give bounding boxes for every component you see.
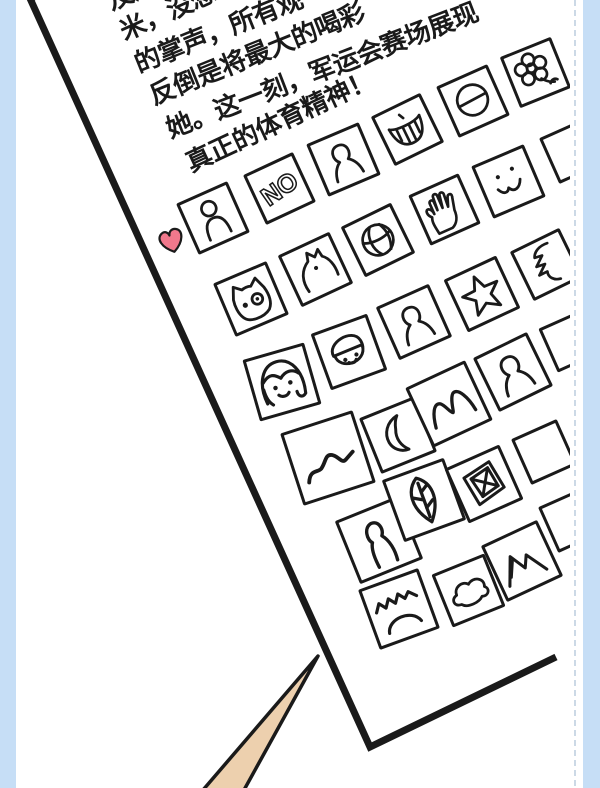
right-dashed-line — [574, 0, 576, 788]
clipped-box-icon — [543, 122, 570, 180]
girl-face-icon — [246, 346, 318, 418]
left-border-strip — [0, 0, 16, 788]
sticker-boy-face — [311, 314, 388, 391]
right-border-strip — [583, 0, 600, 788]
sticker-person-bust — [306, 122, 381, 197]
panel-content: 及远 米，没想到 的掌声，所有观 反倒是将最大的喝彩 她。这一刻，军运会赛场展现… — [16, 0, 570, 788]
no-text-icon: NO — [247, 156, 312, 221]
zigzag-waves-sun-icon — [362, 572, 436, 646]
person-outline-icon — [180, 185, 246, 251]
flower-icon — [504, 41, 568, 105]
sticker-person-bust — [473, 332, 553, 412]
sticker-zigzag-waves-sun — [358, 568, 440, 650]
sticker-clipped-box — [538, 309, 570, 372]
boy-face-icon — [314, 317, 383, 386]
sticker-grin-teeth — [371, 93, 445, 167]
smiley-face-icon — [475, 148, 542, 215]
comic-panel: 及远 米，没想到 的掌声，所有观 反倒是将最大的喝彩 她。这一刻，军运会赛场展现… — [0, 0, 600, 788]
sticker-cat-profile — [278, 232, 354, 308]
sticker-hand — [408, 173, 481, 246]
sticker-person-bust — [376, 284, 453, 361]
person-bust-icon — [380, 288, 449, 357]
sticker-clipped-box — [539, 118, 570, 184]
sticker-zigzag-profile — [510, 228, 570, 302]
svg-text:NO: NO — [256, 167, 304, 212]
clipped-box-icon — [542, 313, 570, 368]
cat-profile-icon — [282, 236, 350, 304]
sticker-owl-face — [213, 261, 289, 337]
sticker-girl-face — [242, 342, 321, 421]
sticker-clipped-box — [511, 419, 570, 485]
hills-line-icon — [284, 414, 372, 502]
basketball-icon — [345, 207, 412, 274]
owl-face-icon — [217, 265, 285, 333]
person-bust-icon — [310, 126, 377, 193]
clipped-box-icon — [515, 423, 570, 481]
grin-teeth-icon — [375, 97, 441, 163]
sticker-smiley-face — [471, 144, 546, 219]
hand-icon — [412, 177, 477, 242]
sticker-star — [443, 255, 520, 332]
sticker-circle-slash — [436, 64, 510, 138]
star-icon — [447, 259, 516, 328]
sticker-no-text: NO — [243, 152, 316, 225]
sticker-flower — [500, 37, 570, 109]
person-bust-icon — [477, 336, 549, 408]
zigzag-profile-icon — [514, 232, 570, 298]
sticker-basketball — [341, 203, 416, 278]
circle-slash-icon — [440, 68, 506, 134]
